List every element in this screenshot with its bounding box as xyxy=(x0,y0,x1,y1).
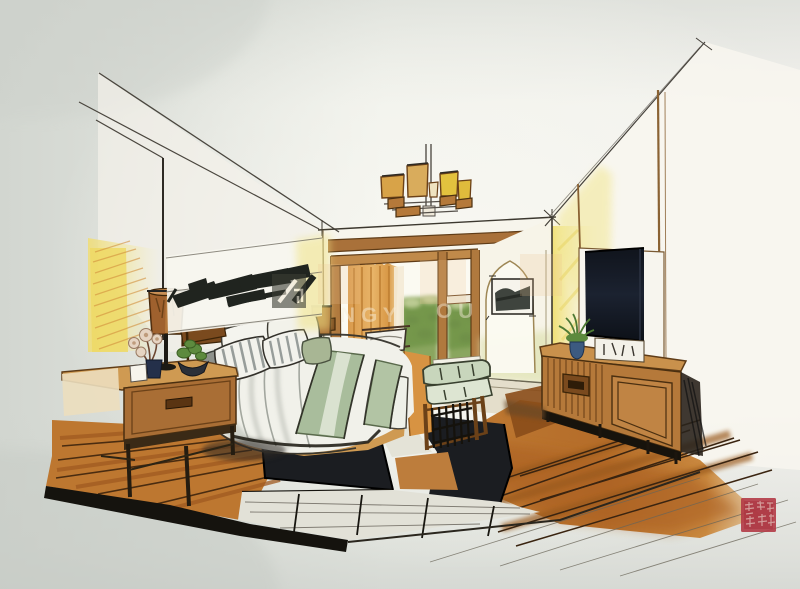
svg-text:O U: O U xyxy=(436,300,473,323)
svg-text:N G Y: N G Y xyxy=(340,304,397,327)
